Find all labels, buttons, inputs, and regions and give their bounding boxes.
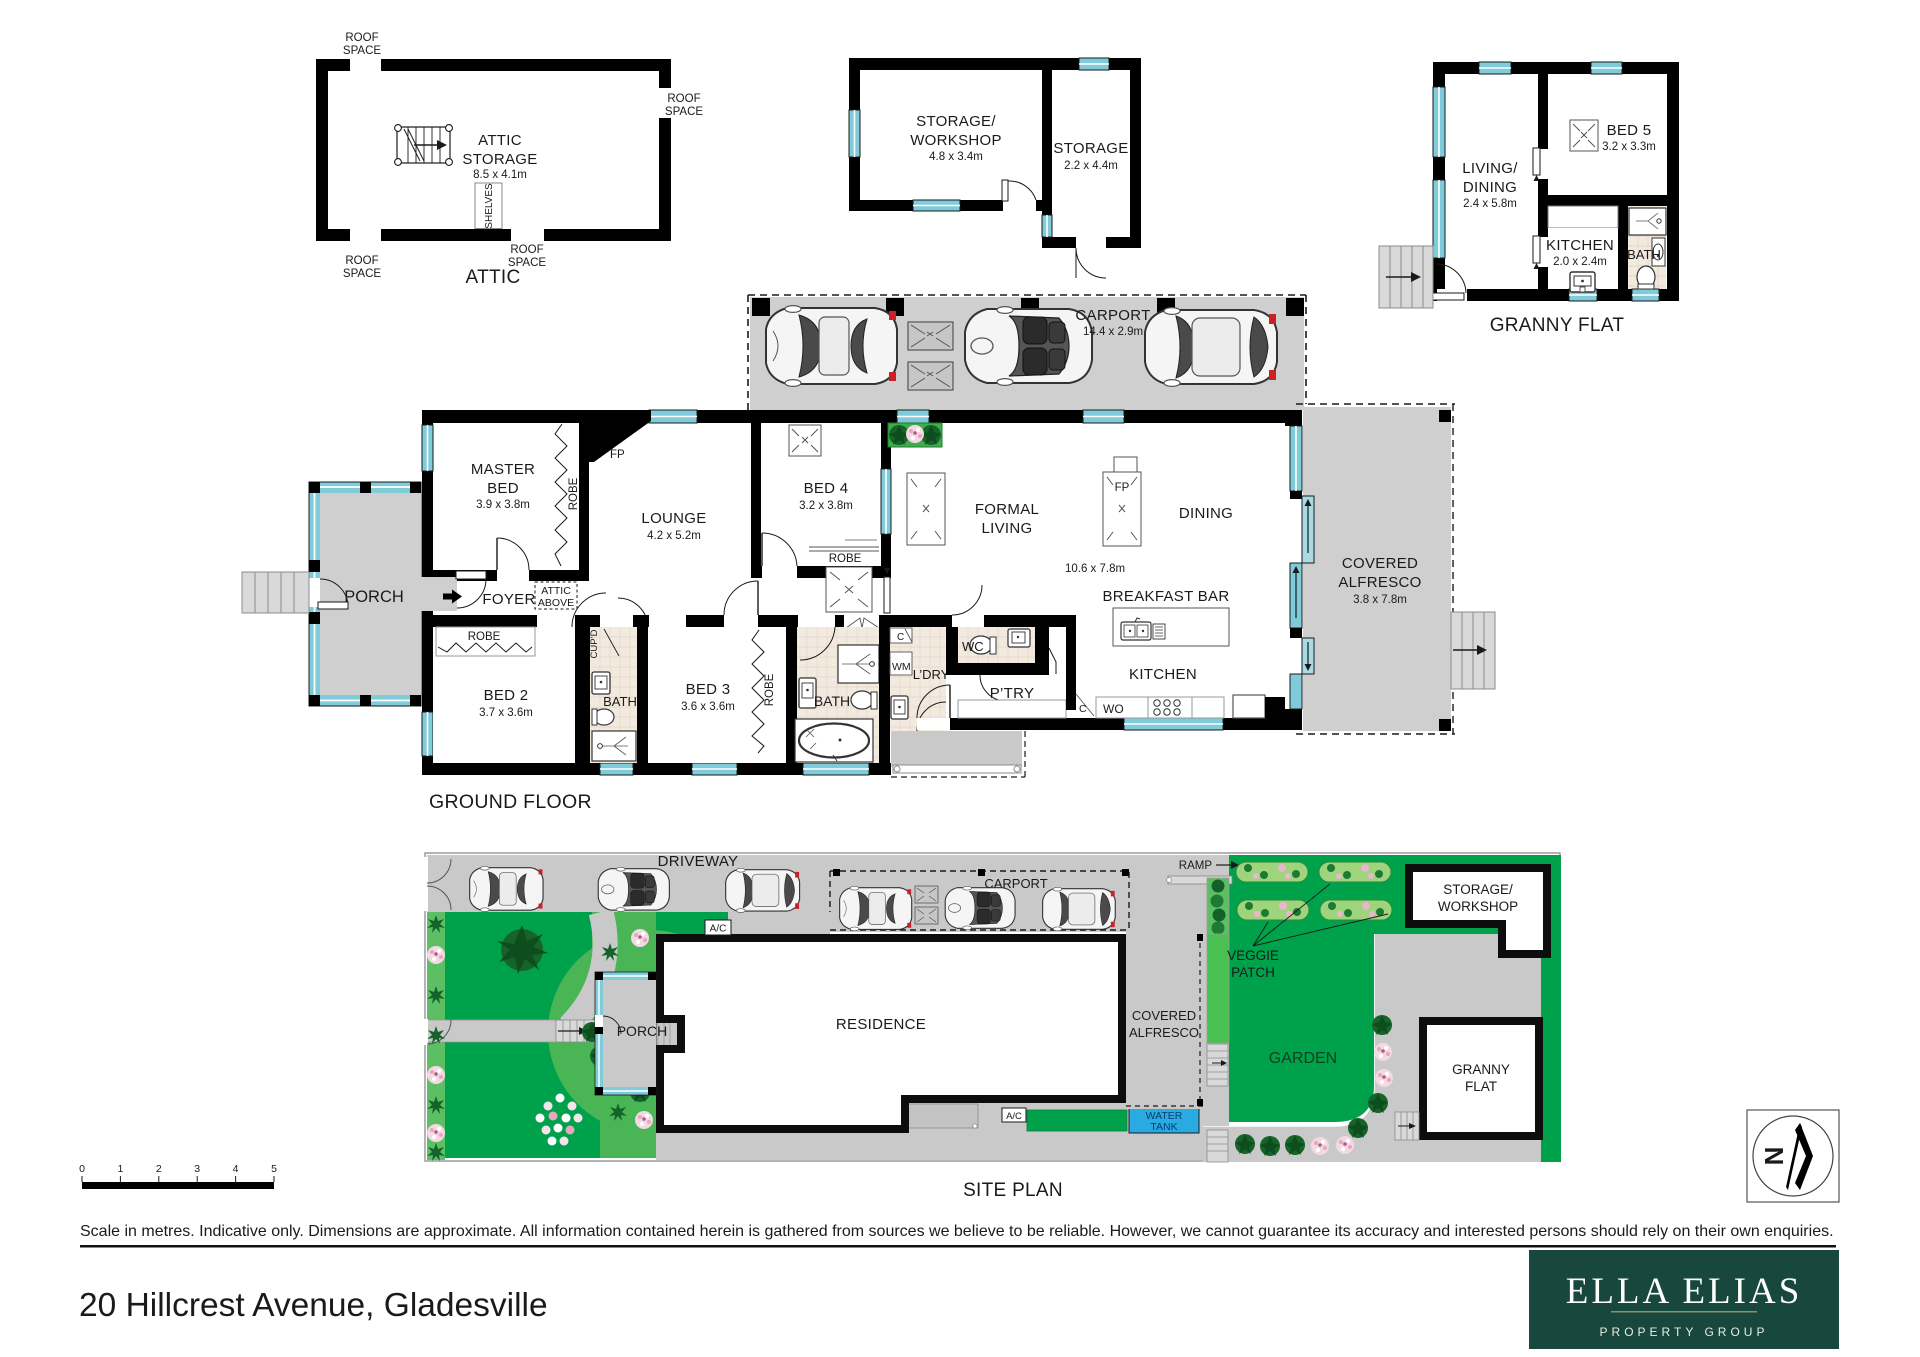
- svg-text:0: 0: [79, 1163, 85, 1175]
- svg-text:SHELVES: SHELVES: [484, 183, 495, 229]
- svg-text:ROBE: ROBE: [568, 477, 580, 510]
- svg-text:RESIDENCE: RESIDENCE: [836, 1016, 926, 1033]
- svg-text:BATH: BATH: [603, 694, 637, 709]
- svg-text:FOYER: FOYER: [482, 591, 535, 608]
- svg-text:ALFRESCO: ALFRESCO: [1129, 1025, 1199, 1040]
- svg-text:BATH: BATH: [1627, 247, 1661, 262]
- svg-text:STORAGE: STORAGE: [462, 151, 537, 168]
- svg-text:4: 4: [233, 1163, 239, 1175]
- svg-text:CARPORT: CARPORT: [1075, 307, 1150, 324]
- svg-text:STORAGE: STORAGE: [1053, 140, 1128, 157]
- svg-text:GROUND FLOOR: GROUND FLOOR: [429, 791, 592, 813]
- svg-text:4.2 x 5.2m: 4.2 x 5.2m: [647, 530, 701, 542]
- svg-text:ATTIC: ATTIC: [466, 267, 521, 288]
- svg-text:BATH: BATH: [814, 693, 850, 709]
- svg-text:WC: WC: [962, 639, 984, 654]
- svg-text:KITCHEN: KITCHEN: [1546, 237, 1614, 254]
- svg-text:SITE PLAN: SITE PLAN: [963, 1180, 1063, 1201]
- svg-text:10.6 x 7.8m: 10.6 x 7.8m: [1065, 563, 1125, 575]
- svg-text:GRANNY FLAT: GRANNY FLAT: [1490, 315, 1625, 336]
- svg-text:MASTER: MASTER: [471, 461, 535, 478]
- svg-text:BED 2: BED 2: [484, 687, 529, 704]
- svg-text:WO: WO: [1103, 702, 1124, 716]
- svg-text:SPACE: SPACE: [343, 268, 381, 280]
- svg-text:DINING: DINING: [1179, 505, 1233, 522]
- svg-text:GARDEN: GARDEN: [1269, 1050, 1337, 1067]
- svg-text:2.0 x 2.4m: 2.0 x 2.4m: [1553, 256, 1607, 268]
- svg-text:2: 2: [156, 1163, 162, 1175]
- svg-text:ROBE: ROBE: [764, 673, 776, 706]
- svg-text:3.2 x 3.3m: 3.2 x 3.3m: [1602, 141, 1656, 153]
- svg-text:BED: BED: [487, 480, 519, 497]
- svg-text:ROBE: ROBE: [829, 553, 862, 565]
- svg-text:PORCH: PORCH: [344, 588, 404, 606]
- svg-text:Scale in metres. Indicative on: Scale in metres. Indicative only. Dimens…: [80, 1223, 1834, 1240]
- svg-text:A/C: A/C: [1006, 1111, 1022, 1122]
- svg-text:C: C: [897, 632, 904, 643]
- svg-text:BED 4: BED 4: [804, 480, 849, 497]
- svg-text:P’TRY: P’TRY: [990, 685, 1035, 702]
- svg-text:ATTIC: ATTIC: [478, 132, 522, 149]
- svg-text:STORAGE/: STORAGE/: [916, 113, 996, 130]
- svg-text:1: 1: [117, 1163, 123, 1175]
- svg-text:RAMP: RAMP: [1179, 860, 1213, 872]
- svg-text:ROOF: ROOF: [345, 255, 378, 267]
- svg-text:ROOF: ROOF: [667, 93, 700, 105]
- svg-text:3.8 x 7.8m: 3.8 x 7.8m: [1353, 594, 1407, 606]
- svg-text:COVERED: COVERED: [1342, 555, 1418, 572]
- svg-text:BREAKFAST BAR: BREAKFAST BAR: [1103, 588, 1230, 605]
- svg-text:4.8 x 3.4m: 4.8 x 3.4m: [929, 151, 983, 163]
- svg-text:5: 5: [271, 1163, 277, 1175]
- svg-text:C: C: [1079, 703, 1087, 715]
- svg-text:LOUNGE: LOUNGE: [641, 510, 706, 527]
- svg-text:2.4 x 5.8m: 2.4 x 5.8m: [1463, 198, 1517, 210]
- svg-text:BED 5: BED 5: [1607, 122, 1652, 139]
- svg-text:20 Hillcrest Avenue, Gladesvil: 20 Hillcrest Avenue, Gladesville: [79, 1287, 548, 1324]
- svg-text:ROBE: ROBE: [468, 631, 501, 643]
- svg-text:CUP’D: CUP’D: [589, 629, 600, 658]
- svg-text:BED 3: BED 3: [686, 681, 731, 698]
- svg-text:ABOVE: ABOVE: [538, 597, 574, 609]
- svg-text:STORAGE/: STORAGE/: [1443, 882, 1513, 897]
- svg-text:FP: FP: [610, 449, 625, 461]
- svg-text:ROOF: ROOF: [510, 244, 543, 256]
- svg-text:ROOF: ROOF: [345, 32, 378, 44]
- svg-text:FLAT: FLAT: [1465, 1079, 1497, 1094]
- svg-text:ELLA ELIAS: ELLA ELIAS: [1566, 1271, 1803, 1312]
- svg-text:3.6 x 3.6m: 3.6 x 3.6m: [681, 701, 735, 713]
- svg-text:3.2 x 3.8m: 3.2 x 3.8m: [799, 500, 853, 512]
- svg-text:PORCH: PORCH: [617, 1023, 668, 1039]
- svg-text:FORMAL: FORMAL: [975, 501, 1039, 518]
- svg-text:L’DRY: L’DRY: [913, 667, 950, 682]
- svg-text:PROPERTY GROUP: PROPERTY GROUP: [1600, 1325, 1769, 1339]
- svg-text:WORKSHOP: WORKSHOP: [910, 132, 1002, 149]
- svg-text:WORKSHOP: WORKSHOP: [1438, 899, 1518, 914]
- svg-text:GRANNY: GRANNY: [1452, 1062, 1510, 1077]
- svg-text:A/C: A/C: [710, 924, 727, 935]
- svg-text:LIVING: LIVING: [982, 520, 1033, 537]
- svg-text:WM: WM: [892, 661, 911, 673]
- svg-text:PATCH: PATCH: [1231, 965, 1275, 980]
- svg-text:TANK: TANK: [1150, 1121, 1177, 1133]
- svg-text:VEGGIE: VEGGIE: [1227, 948, 1279, 963]
- svg-text:KITCHEN: KITCHEN: [1129, 666, 1197, 683]
- svg-text:8.5 x 4.1m: 8.5 x 4.1m: [473, 169, 527, 181]
- svg-text:3: 3: [194, 1163, 200, 1175]
- svg-text:SPACE: SPACE: [343, 45, 381, 57]
- svg-text:3.9 x 3.8m: 3.9 x 3.8m: [476, 499, 530, 511]
- svg-text:SPACE: SPACE: [665, 106, 703, 118]
- svg-text:FP: FP: [1115, 482, 1130, 494]
- svg-text:COVERED: COVERED: [1132, 1008, 1196, 1023]
- svg-text:ATTIC: ATTIC: [541, 585, 571, 597]
- svg-text:ALFRESCO: ALFRESCO: [1338, 574, 1421, 591]
- svg-text:N: N: [1759, 1147, 1789, 1166]
- svg-text:14.4 x 2.9m: 14.4 x 2.9m: [1083, 326, 1143, 338]
- svg-text:3.7 x 3.6m: 3.7 x 3.6m: [479, 707, 533, 719]
- svg-text:2.2 x 4.4m: 2.2 x 4.4m: [1064, 160, 1118, 172]
- svg-text:DINING: DINING: [1463, 179, 1517, 196]
- svg-text:LIVING/: LIVING/: [1462, 160, 1518, 177]
- svg-text:DRIVEWAY: DRIVEWAY: [658, 853, 739, 870]
